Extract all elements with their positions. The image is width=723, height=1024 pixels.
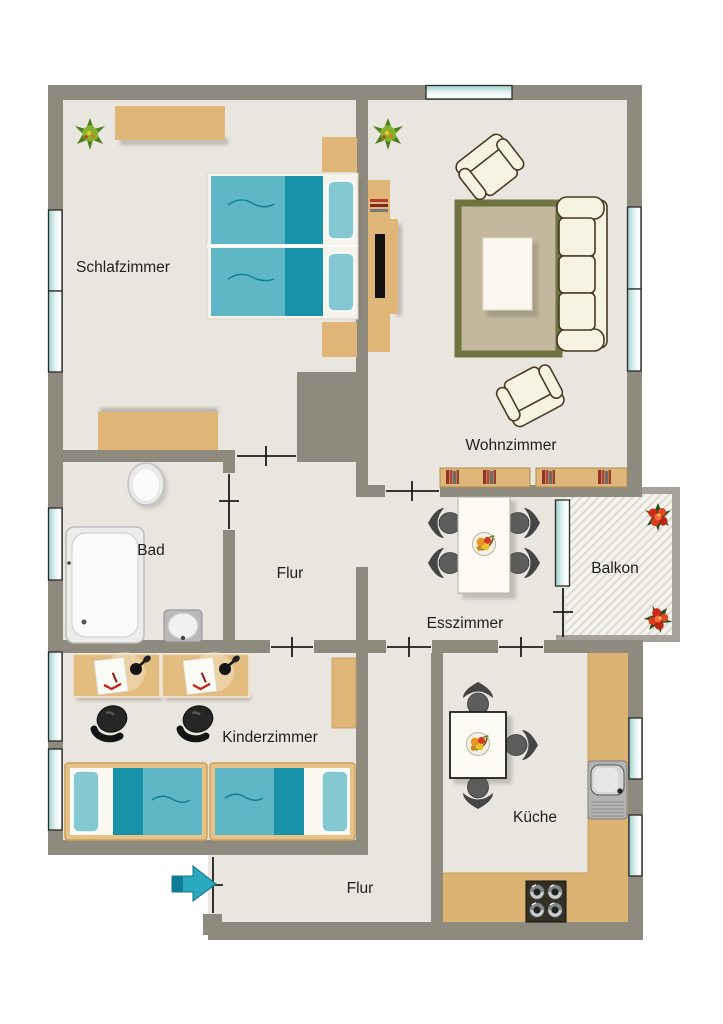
window-icon xyxy=(49,652,63,741)
window-icon xyxy=(629,718,642,779)
window-icon xyxy=(49,508,63,580)
floorplan-canvas: Schlafzimmer Wohnzimmer Bad Flur Esszimm… xyxy=(0,0,723,1024)
fruit-bowl-icon xyxy=(473,533,496,556)
bathtub-icon xyxy=(66,527,144,643)
window-icon xyxy=(49,749,63,830)
kitchen-sink-icon xyxy=(588,761,627,819)
shelf-icon xyxy=(332,658,356,728)
room-label-balkon: Balkon xyxy=(591,560,638,577)
stove-icon xyxy=(526,881,566,922)
window-icon xyxy=(49,210,63,291)
window-icon xyxy=(628,289,642,371)
washbasin-icon xyxy=(164,610,202,642)
nightstand-icon xyxy=(322,137,357,172)
room-label-kueche: Küche xyxy=(513,809,557,826)
sofa-icon xyxy=(557,197,607,351)
floorplan-svg: Schlafzimmer Wohnzimmer Bad Flur Esszimm… xyxy=(0,0,723,1024)
fruit-bowl-icon xyxy=(467,733,490,756)
window-icon xyxy=(49,291,63,372)
dresser-icon xyxy=(98,412,218,450)
window-icon xyxy=(426,86,512,100)
balcony-window-icon xyxy=(556,500,570,586)
double-bed-icon xyxy=(207,173,361,320)
single-bed-icon xyxy=(210,763,355,840)
room-label-bad: Bad xyxy=(137,542,165,559)
single-bed-icon xyxy=(65,763,207,840)
tv-icon xyxy=(375,234,385,298)
room-label-wohnzimmer: Wohnzimmer xyxy=(465,437,556,454)
desk-icon xyxy=(73,652,162,701)
room-label-flur-mitte: Flur xyxy=(277,565,304,582)
wardrobe-icon xyxy=(115,106,225,140)
window-icon xyxy=(628,207,642,289)
room-label-flur-unten: Flur xyxy=(347,880,374,897)
room-label-kinderzimmer: Kinderzimmer xyxy=(222,729,318,746)
room-label-esszimmer: Esszimmer xyxy=(427,615,504,632)
coffee-table-icon xyxy=(483,238,532,310)
window-icon xyxy=(629,815,642,876)
nightstand-icon xyxy=(322,322,357,357)
desk-icon xyxy=(162,652,251,701)
room-label-schlafzimmer: Schlafzimmer xyxy=(76,259,170,276)
